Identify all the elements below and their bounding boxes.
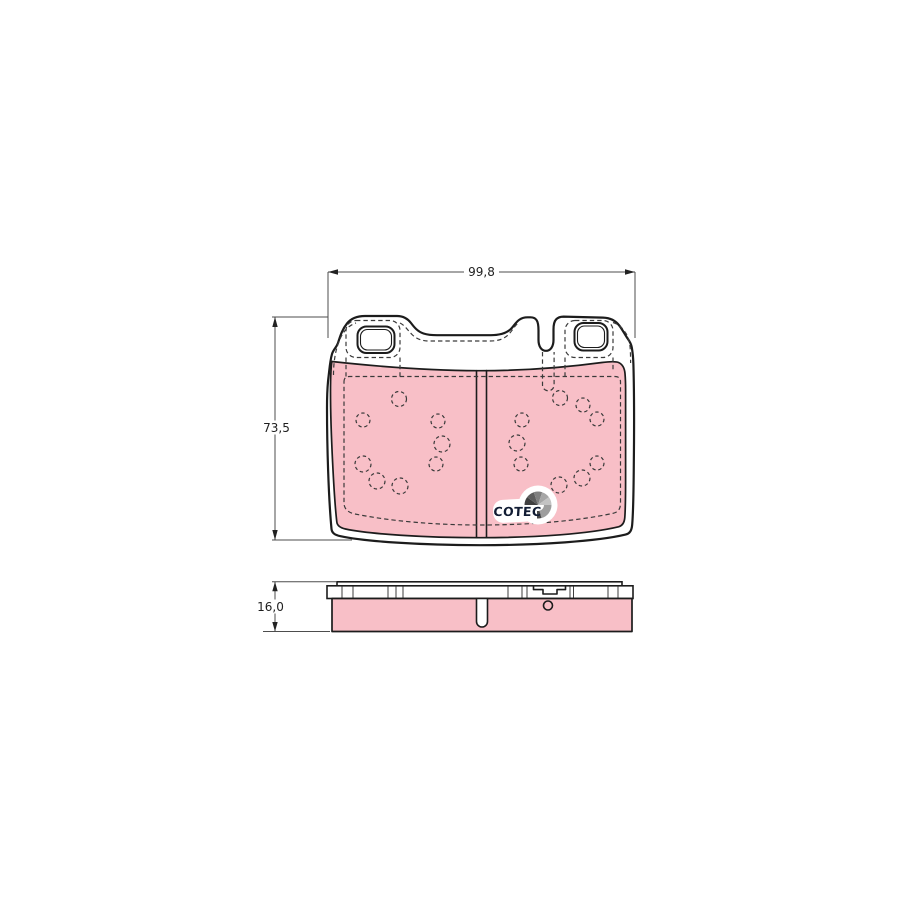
arrow-down (272, 622, 277, 632)
dimension-thickness: 16,0 (252, 582, 337, 632)
thickness-dimension-label: 16,0 (257, 600, 284, 614)
width-dimension-label: 99,8 (468, 265, 495, 279)
technical-drawing-canvas: COTEC 99,8 (0, 0, 900, 900)
backing-plate-edge (327, 586, 633, 599)
left-lug-hole (358, 327, 395, 354)
center-groove (477, 599, 488, 628)
arrow-down (272, 530, 277, 540)
arrow-up (272, 317, 277, 327)
side-view (327, 582, 633, 632)
arrow-up (272, 582, 277, 592)
right-lug-hole (575, 323, 608, 351)
height-dimension-label: 73,5 (263, 421, 290, 435)
logo-word: COTEC (493, 504, 542, 519)
friction-material (331, 362, 626, 538)
brake-pad-drawing: COTEC 99,8 (0, 0, 900, 900)
arrow-right (625, 269, 635, 274)
arrow-left (328, 269, 338, 274)
front-view: COTEC (327, 316, 634, 545)
